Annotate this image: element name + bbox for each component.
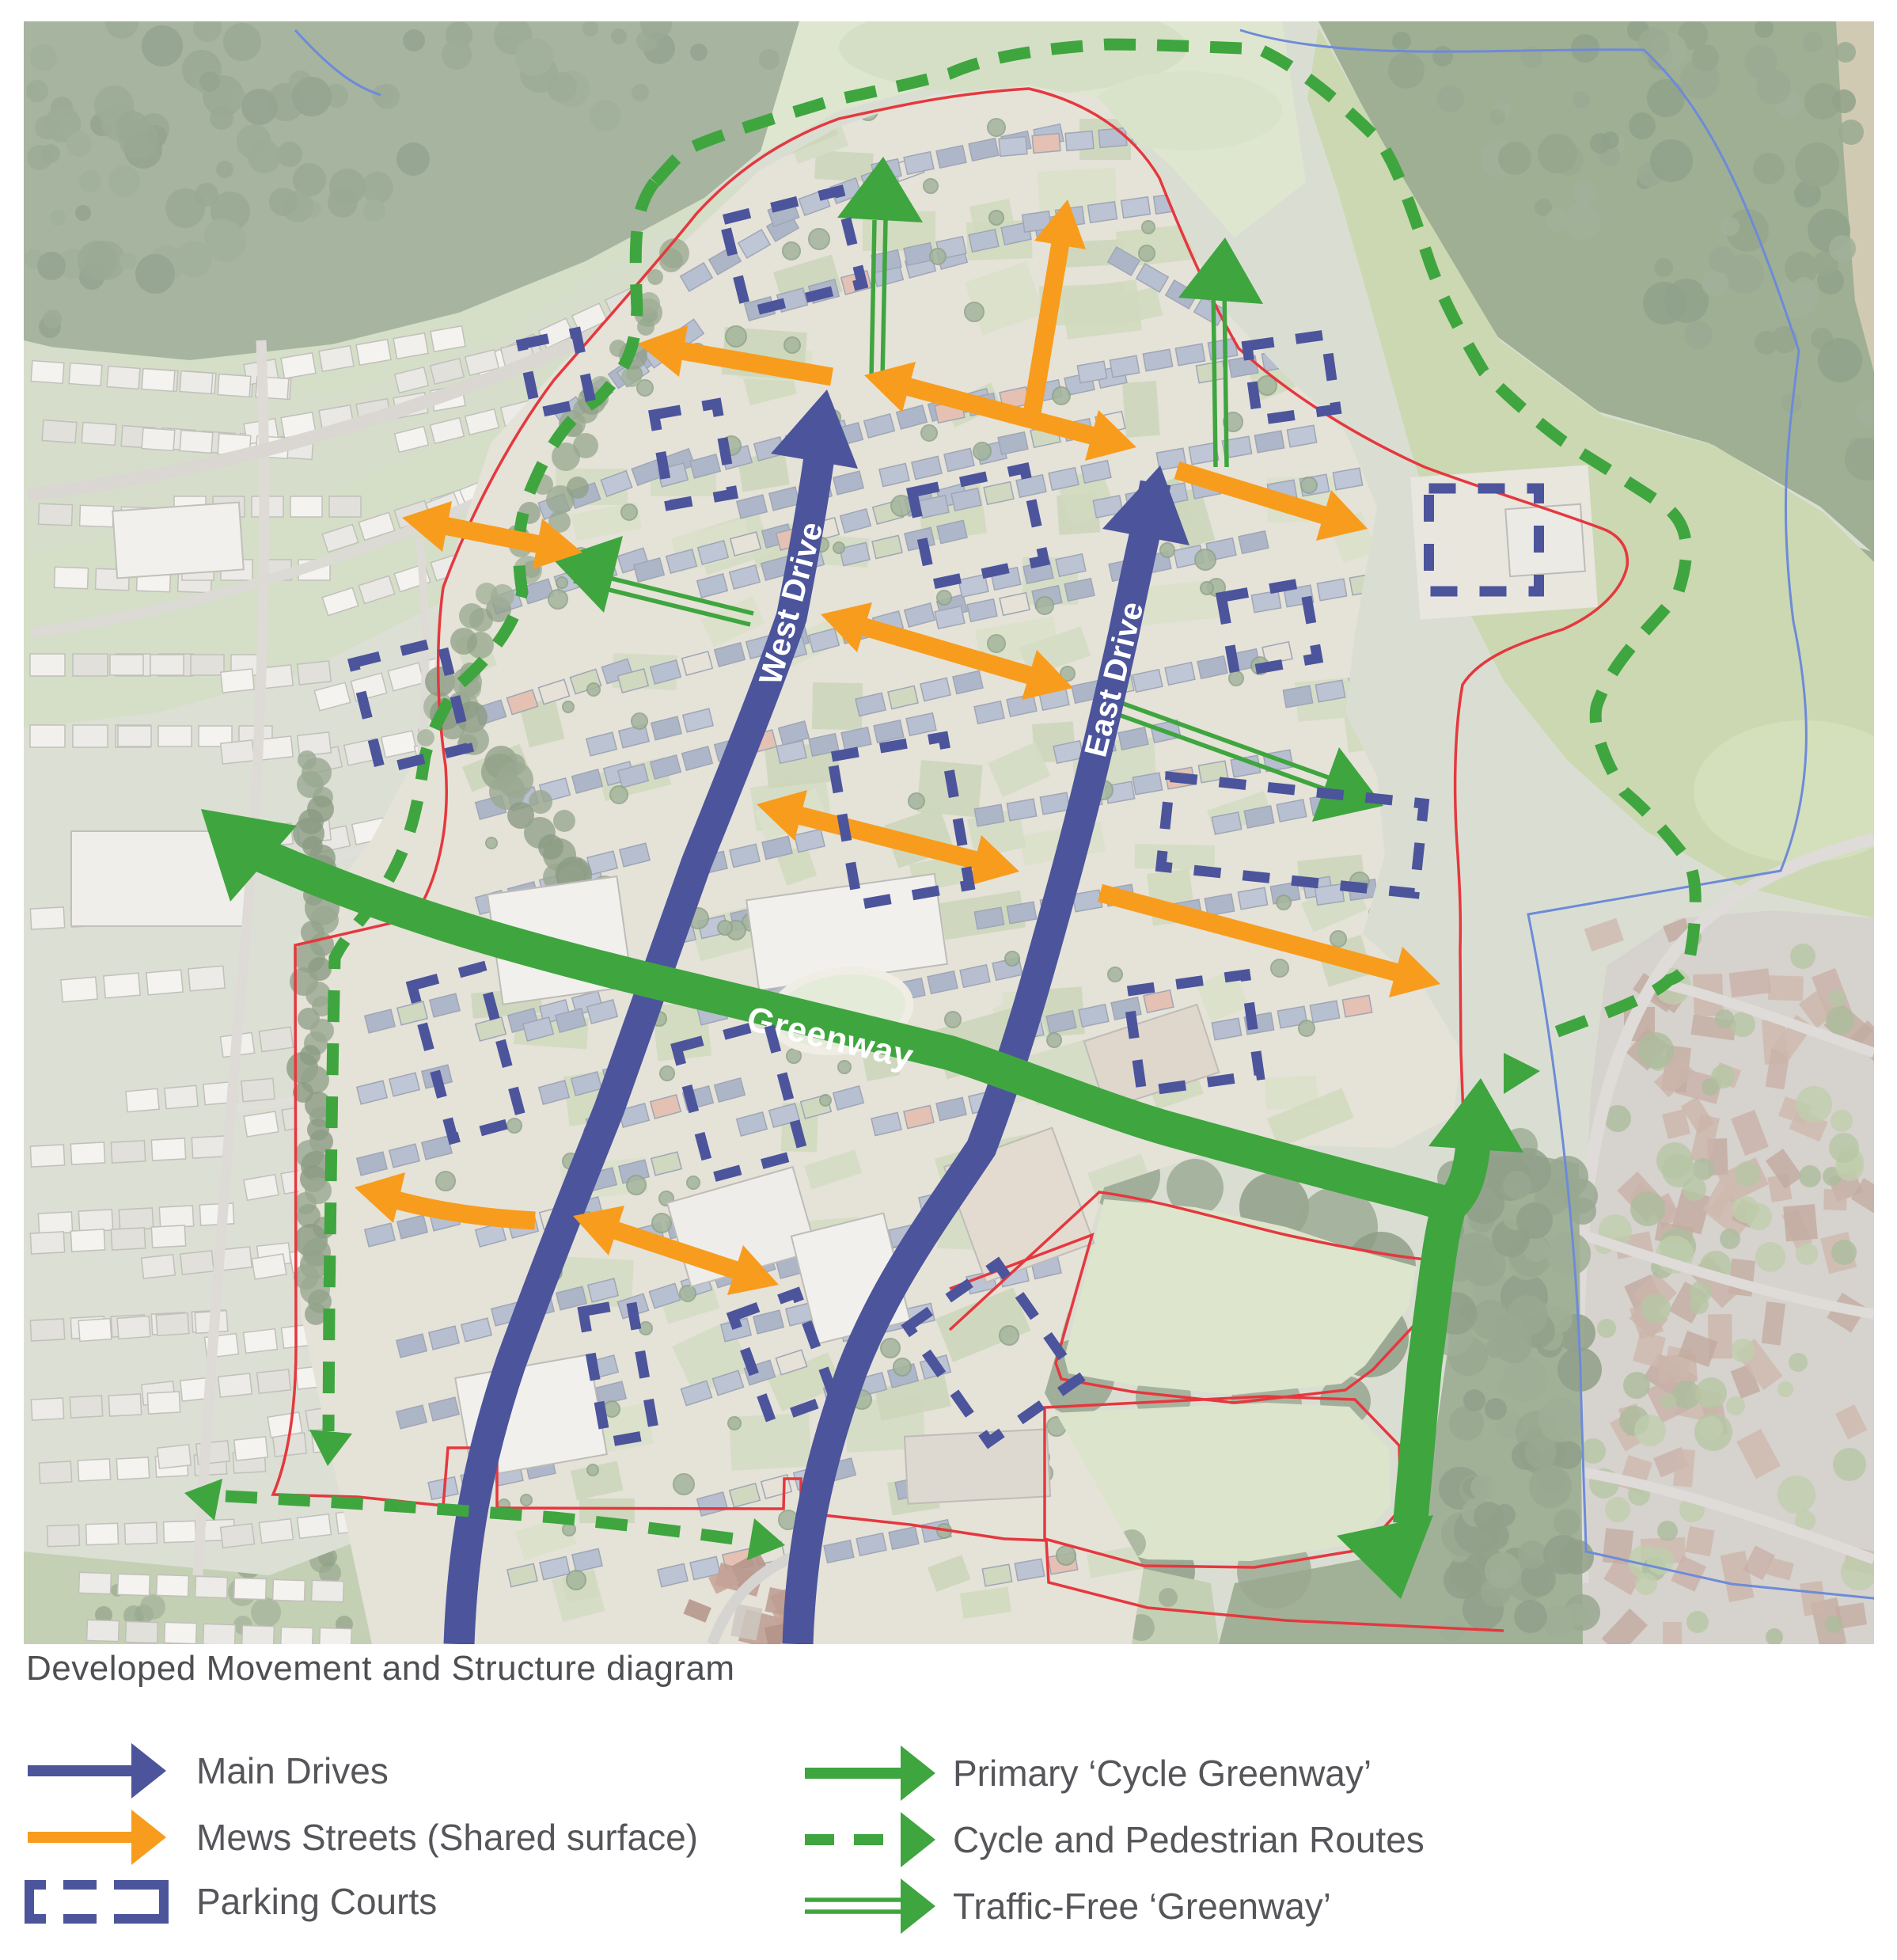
svg-text:Primary ‘Cycle Greenway’: Primary ‘Cycle Greenway’ (953, 1753, 1372, 1794)
svg-text:Mews Streets (Shared surface): Mews Streets (Shared surface) (196, 1817, 698, 1858)
svg-text:Parking Courts: Parking Courts (196, 1881, 437, 1922)
svg-text:Main Drives: Main Drives (196, 1750, 389, 1791)
svg-text:Cycle and Pedestrian Routes: Cycle and Pedestrian Routes (953, 1819, 1425, 1860)
svg-text:Traffic-Free ‘Greenway’: Traffic-Free ‘Greenway’ (953, 1886, 1331, 1927)
svg-text:Developed Movement and Structu: Developed Movement and Structure diagram (26, 1649, 735, 1688)
